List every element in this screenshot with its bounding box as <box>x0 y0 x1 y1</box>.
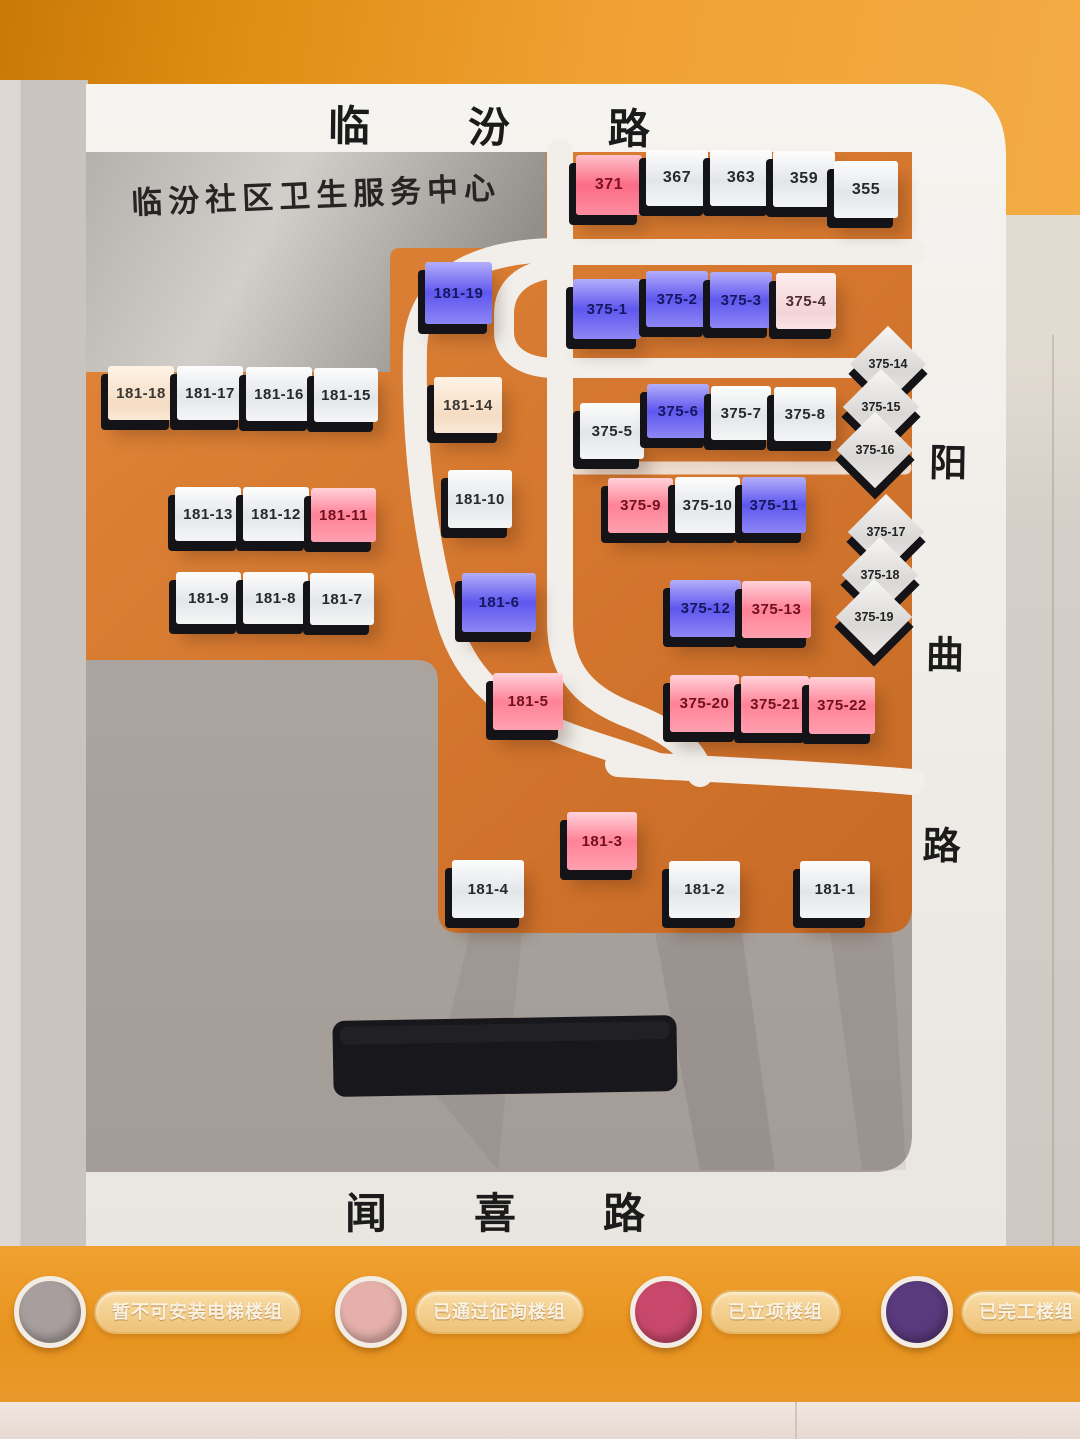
legend-color-circle <box>630 1276 702 1348</box>
block-tile-355: 355 <box>834 161 898 218</box>
legend-items: 暂不可安装电梯楼组已通过征询楼组已立项楼组已完工楼组 <box>0 1276 1080 1348</box>
block-tile-181-8: 181-8 <box>243 572 308 624</box>
block-tile-181-5: 181-5 <box>493 673 563 730</box>
block-tile-375-9: 375-9 <box>608 478 673 533</box>
road-label-wenxi-road: 闻喜路 <box>345 1180 645 1241</box>
road-label-linfen-road: 临汾路 <box>328 92 651 156</box>
block-tile-181-10: 181-10 <box>448 470 512 528</box>
block-tile-181-14: 181-14 <box>434 377 502 433</box>
road-char: 路 <box>608 95 651 156</box>
legend-label: 已完工楼组 <box>961 1290 1080 1334</box>
block-tile-375-13: 375-13 <box>742 581 811 638</box>
road-char: 闻 <box>345 1180 387 1241</box>
block-tile-367: 367 <box>646 150 708 206</box>
block-tile-181-7: 181-7 <box>310 573 374 625</box>
block-tile-181-11: 181-11 <box>311 488 376 542</box>
bottom-seam <box>795 1402 797 1439</box>
diamond-tile-375-16: 375-16 <box>837 412 913 488</box>
legend-item: 暂不可安装电梯楼组 <box>14 1276 301 1348</box>
block-tile-181-3: 181-3 <box>567 812 637 870</box>
legend-label: 已通过征询楼组 <box>415 1290 584 1334</box>
block-tile-363: 363 <box>710 150 772 206</box>
map-board-photo: 临汾路 阳曲路 闻喜路 临汾社区卫生服务中心 37136736335935518… <box>0 0 1080 1439</box>
diamond-tile-label: 375-19 <box>847 590 901 644</box>
road-char: 路 <box>922 815 961 871</box>
block-tile-181-15: 181-15 <box>314 368 378 422</box>
block-tile-371: 371 <box>576 155 642 215</box>
legend-item: 已完工楼组 <box>881 1276 1080 1348</box>
road-char: 曲 <box>926 623 965 679</box>
block-tile-375-3: 375-3 <box>710 272 772 328</box>
block-tile-181-16: 181-16 <box>246 367 312 421</box>
legend-item: 已立项楼组 <box>630 1276 841 1348</box>
block-tile-181-6: 181-6 <box>462 573 536 632</box>
legend-color-circle <box>335 1276 407 1348</box>
diamond-tile-label: 375-16 <box>848 423 902 477</box>
block-tile-375-22: 375-22 <box>809 677 875 734</box>
road-char: 汾 <box>468 94 511 155</box>
road-char: 路 <box>603 1180 645 1241</box>
block-tile-375-12: 375-12 <box>670 580 741 637</box>
block-tile-181-4: 181-4 <box>452 860 524 918</box>
block-tile-181-13: 181-13 <box>175 487 241 541</box>
road-char: 喜 <box>474 1180 516 1241</box>
road-char: 阳 <box>929 432 968 488</box>
legend-band: 暂不可安装电梯楼组已通过征询楼组已立项楼组已完工楼组 <box>0 1246 1080 1402</box>
block-tile-181-2: 181-2 <box>669 861 740 918</box>
block-tile-181-12: 181-12 <box>243 487 309 541</box>
legend-label: 暂不可安装电梯楼组 <box>94 1290 301 1334</box>
school-sign <box>332 1015 677 1097</box>
block-tile-375-20: 375-20 <box>670 675 739 732</box>
block-tile-181-18: 181-18 <box>108 366 174 420</box>
block-tile-359: 359 <box>773 151 835 207</box>
legend-color-circle <box>881 1276 953 1348</box>
block-tile-375-8: 375-8 <box>774 387 836 441</box>
block-tile-375-5: 375-5 <box>580 403 644 459</box>
legend-label: 已立项楼组 <box>710 1290 841 1334</box>
block-tile-181-1: 181-1 <box>800 861 870 918</box>
board-bottom-edge <box>0 1402 1080 1439</box>
legend-item: 已通过征询楼组 <box>335 1276 584 1348</box>
block-tile-375-11: 375-11 <box>742 477 806 533</box>
block-tile-375-1: 375-1 <box>573 279 641 339</box>
block-tile-181-17: 181-17 <box>177 366 243 420</box>
block-tile-375-7: 375-7 <box>711 386 771 440</box>
road-label-yangqu-road: 阳曲路 <box>913 432 977 871</box>
block-tile-375-21: 375-21 <box>741 676 809 733</box>
block-tile-181-9: 181-9 <box>176 572 241 624</box>
block-tile-375-2: 375-2 <box>646 271 708 327</box>
diamond-tile-375-19: 375-19 <box>836 579 912 655</box>
block-tile-375-10: 375-10 <box>675 477 740 533</box>
block-tile-375-4: 375-4 <box>776 273 836 329</box>
block-tile-181-19: 181-19 <box>425 262 492 324</box>
road-char: 临 <box>328 92 371 153</box>
block-tile-375-6: 375-6 <box>647 384 709 438</box>
legend-color-circle <box>14 1276 86 1348</box>
